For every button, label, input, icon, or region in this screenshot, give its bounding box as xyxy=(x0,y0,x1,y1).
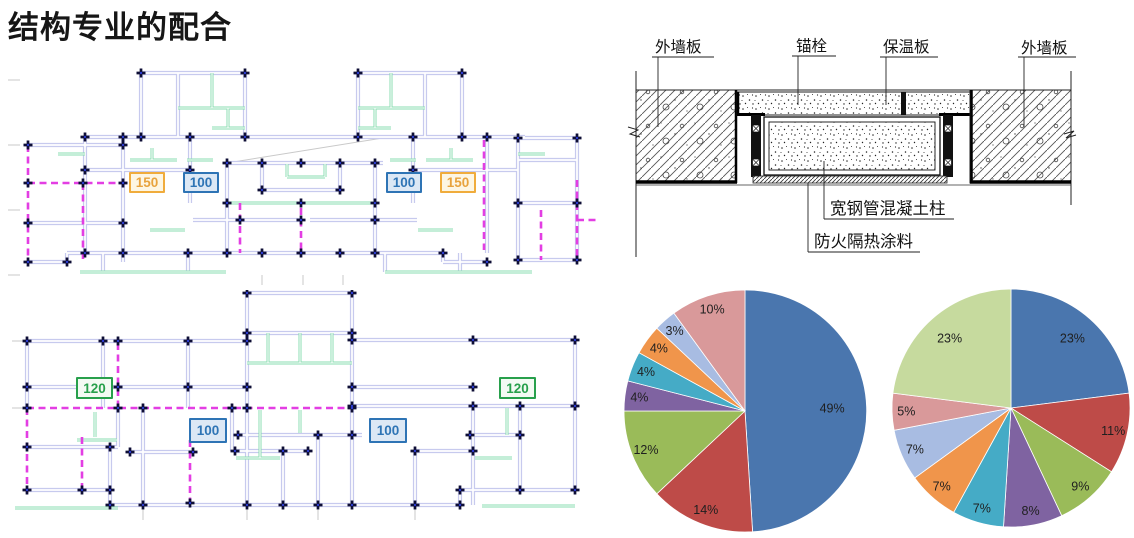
column-node-dot xyxy=(246,386,248,388)
column-node-dot xyxy=(122,136,124,138)
column-node-dot xyxy=(414,504,416,506)
column-node-dot xyxy=(122,144,124,146)
column-node-dot xyxy=(261,189,263,191)
column-node-dot xyxy=(189,169,191,171)
column-node-dot xyxy=(517,259,519,261)
label-anchor-bolt: 锚栓 xyxy=(796,37,827,55)
column-node-dot xyxy=(187,386,189,388)
plan-label-120-right: 120 xyxy=(499,377,536,399)
column-node-dot xyxy=(66,261,68,263)
pie-slice-label: 4% xyxy=(630,391,648,405)
column-node-dot xyxy=(574,489,576,491)
column-node-dot xyxy=(140,136,142,138)
floor-plan-bottom xyxy=(0,290,610,538)
plan-label-100-right: 100 xyxy=(386,172,422,193)
pie-slice-label: 49% xyxy=(820,401,845,415)
column-node-dot xyxy=(472,450,474,452)
detail-fireproof-coating xyxy=(753,176,947,183)
column-node-dot xyxy=(459,504,461,506)
pie-slice-label: 7% xyxy=(973,502,991,516)
column-node-dot xyxy=(239,219,241,221)
column-node-dot xyxy=(519,434,521,436)
plan-label-150-left: 150 xyxy=(129,172,165,193)
column-node-dot xyxy=(351,504,353,506)
wall-lines-core xyxy=(28,73,577,272)
pie-chart-right: 23%11%9%8%7%7%7%5%23% xyxy=(888,288,1134,538)
column-node-dot xyxy=(374,252,376,254)
beam-lines-green-core xyxy=(15,333,575,508)
column-node-dot xyxy=(339,189,341,191)
column-node-dot xyxy=(300,219,302,221)
column-node-dot xyxy=(317,434,319,436)
column-node-dot xyxy=(261,252,263,254)
column-node-dot xyxy=(246,504,248,506)
column-node-dot xyxy=(282,504,284,506)
label-fireproof-coating: 防火隔热涂料 xyxy=(814,232,913,251)
column-node-dot xyxy=(129,451,131,453)
label-exterior-panel-right: 外墙板 xyxy=(1021,39,1068,57)
slide-canvas: 结构专业的配合 150 100 100 150 120 100 100 120 xyxy=(0,0,1134,538)
column-node-dot xyxy=(414,450,416,452)
column-node-dot xyxy=(187,340,189,342)
pie-slice-label: 3% xyxy=(666,324,684,338)
pie-slice-label: 14% xyxy=(693,503,718,517)
column-node-dot xyxy=(109,489,111,491)
pie-slice-label: 4% xyxy=(650,341,668,355)
pie-chart-left: 49%14%12%4%4%4%3%10% xyxy=(622,288,870,538)
column-node-dot xyxy=(82,182,84,184)
column-node-dot xyxy=(472,339,474,341)
label-steel-tube-column: 宽钢管混凝土柱 xyxy=(830,199,946,218)
plan-label-150-right: 150 xyxy=(440,172,476,193)
plan-label-100b-right: 100 xyxy=(369,418,407,443)
column-node-dot xyxy=(142,504,144,506)
column-node-dot xyxy=(469,434,471,436)
detail-concrete-column xyxy=(764,117,940,175)
column-node-dot xyxy=(84,252,86,254)
pie-slice-label: 12% xyxy=(633,443,658,457)
column-node-dot xyxy=(351,339,353,341)
wall-detail-drawing: 外墙板 锚栓 保温板 外墙板 宽钢管混凝土柱 防火隔热涂料 xyxy=(624,15,1134,267)
column-node-dot xyxy=(576,202,578,204)
column-node-dot xyxy=(261,162,263,164)
column-node-dot xyxy=(226,162,228,164)
page-title: 结构专业的配合 xyxy=(8,2,232,47)
column-node-dot xyxy=(234,450,236,452)
column-node-dot xyxy=(246,292,248,294)
column-node-dot xyxy=(84,169,86,171)
column-node-dot xyxy=(357,136,359,138)
column-node-dot xyxy=(574,339,576,341)
label-exterior-panel-left: 外墙板 xyxy=(655,38,702,56)
column-node-dot xyxy=(486,261,488,263)
column-node-dot xyxy=(357,72,359,74)
column-node-dot xyxy=(576,137,578,139)
column-node-dot xyxy=(226,202,228,204)
column-node-dot xyxy=(300,252,302,254)
plan-label-100b-left: 100 xyxy=(189,418,227,443)
column-node-dot xyxy=(117,386,119,388)
column-nodes xyxy=(23,290,580,510)
column-node-dot xyxy=(142,407,144,409)
column-node-dot xyxy=(300,202,302,204)
column-node-dot xyxy=(117,340,119,342)
pie-slice-label: 4% xyxy=(637,365,655,379)
wall-lines xyxy=(28,73,577,272)
column-node-dot xyxy=(26,386,28,388)
column-node-dot xyxy=(246,407,248,409)
column-node-dot xyxy=(412,169,414,171)
column-node-dot xyxy=(517,202,519,204)
pie-slice-label: 10% xyxy=(700,303,725,317)
column-node-dot xyxy=(461,136,463,138)
column-node-dot xyxy=(237,434,239,436)
column-node-dot xyxy=(519,405,521,407)
column-node-dot xyxy=(574,405,576,407)
pie-slice-label: 23% xyxy=(1060,331,1085,345)
column-node-dot xyxy=(26,489,28,491)
column-node-dot xyxy=(459,489,461,491)
column-node-dot xyxy=(122,182,124,184)
detail-right-wall-panel xyxy=(970,90,1071,183)
column-node-dot xyxy=(307,450,309,452)
column-node-dot xyxy=(412,136,414,138)
column-node-dot xyxy=(26,407,28,409)
column-node-dot xyxy=(351,407,353,409)
label-insulation-board: 保温板 xyxy=(883,38,930,56)
column-node-dot xyxy=(187,252,189,254)
column-node-dot xyxy=(122,252,124,254)
plan-label-100-left: 100 xyxy=(183,172,219,193)
column-node-dot xyxy=(317,504,319,506)
pie-slice-label: 11% xyxy=(1101,424,1125,438)
column-node-dot xyxy=(84,136,86,138)
beam-lines-green xyxy=(15,333,575,508)
pie-slice-label: 8% xyxy=(1022,504,1040,518)
column-node-dot xyxy=(442,252,444,254)
column-node-dot xyxy=(351,292,353,294)
column-node-dot xyxy=(339,252,341,254)
column-node-dot xyxy=(374,219,376,221)
column-node-dot xyxy=(140,72,142,74)
plan-label-120-left: 120 xyxy=(76,377,113,399)
floor-plan-top xyxy=(0,60,610,295)
column-node-dot xyxy=(27,182,29,184)
column-node-dot xyxy=(27,222,29,224)
pie-slice xyxy=(1011,289,1129,408)
column-node-dot xyxy=(102,340,104,342)
column-node-dot xyxy=(519,489,521,491)
column-node-dot xyxy=(339,162,341,164)
column-node-dot xyxy=(351,386,353,388)
column-node-dot xyxy=(472,386,474,388)
column-node-dot xyxy=(226,252,228,254)
pie-slice-label: 5% xyxy=(897,404,915,418)
column-node-dot xyxy=(231,407,233,409)
pie-slice-label: 9% xyxy=(1071,480,1089,494)
column-node-dot xyxy=(486,136,488,138)
column-node-dot xyxy=(461,72,463,74)
wall-lines-core xyxy=(27,293,575,505)
column-node-dot xyxy=(282,450,284,452)
column-node-dot xyxy=(122,222,124,224)
detail-left-wall-panel xyxy=(636,90,737,183)
column-node-dot xyxy=(246,332,248,334)
pie-slice xyxy=(893,289,1011,408)
column-node-dot xyxy=(374,162,376,164)
column-node-dot xyxy=(26,446,28,448)
column-node-dot xyxy=(117,407,119,409)
pie-slice-label: 7% xyxy=(933,480,951,494)
column-node-dot xyxy=(27,144,29,146)
column-node-dot xyxy=(351,434,353,436)
pie-slice-label: 23% xyxy=(937,331,962,345)
column-node-dot xyxy=(374,202,376,204)
column-node-dot xyxy=(189,502,191,504)
column-node-dot xyxy=(244,72,246,74)
column-node-dot xyxy=(300,162,302,164)
pie-slice xyxy=(745,290,867,532)
column-node-dot xyxy=(192,451,194,453)
column-nodes xyxy=(24,69,582,267)
detail-insulation-board xyxy=(737,92,970,115)
column-node-dot xyxy=(576,259,578,261)
column-node-dot xyxy=(109,504,111,506)
column-node-dot xyxy=(109,446,111,448)
column-node-dot xyxy=(244,136,246,138)
column-node-dot xyxy=(189,136,191,138)
column-node-dot xyxy=(81,489,83,491)
column-node-dot xyxy=(246,340,248,342)
column-node-dot xyxy=(26,340,28,342)
column-node-dot xyxy=(472,405,474,407)
column-node-dot xyxy=(351,332,353,334)
pie-slice-label: 7% xyxy=(906,443,924,457)
column-node-dot xyxy=(27,261,29,263)
shearwall-lines-magenta xyxy=(28,140,600,260)
column-node-dot xyxy=(517,137,519,139)
